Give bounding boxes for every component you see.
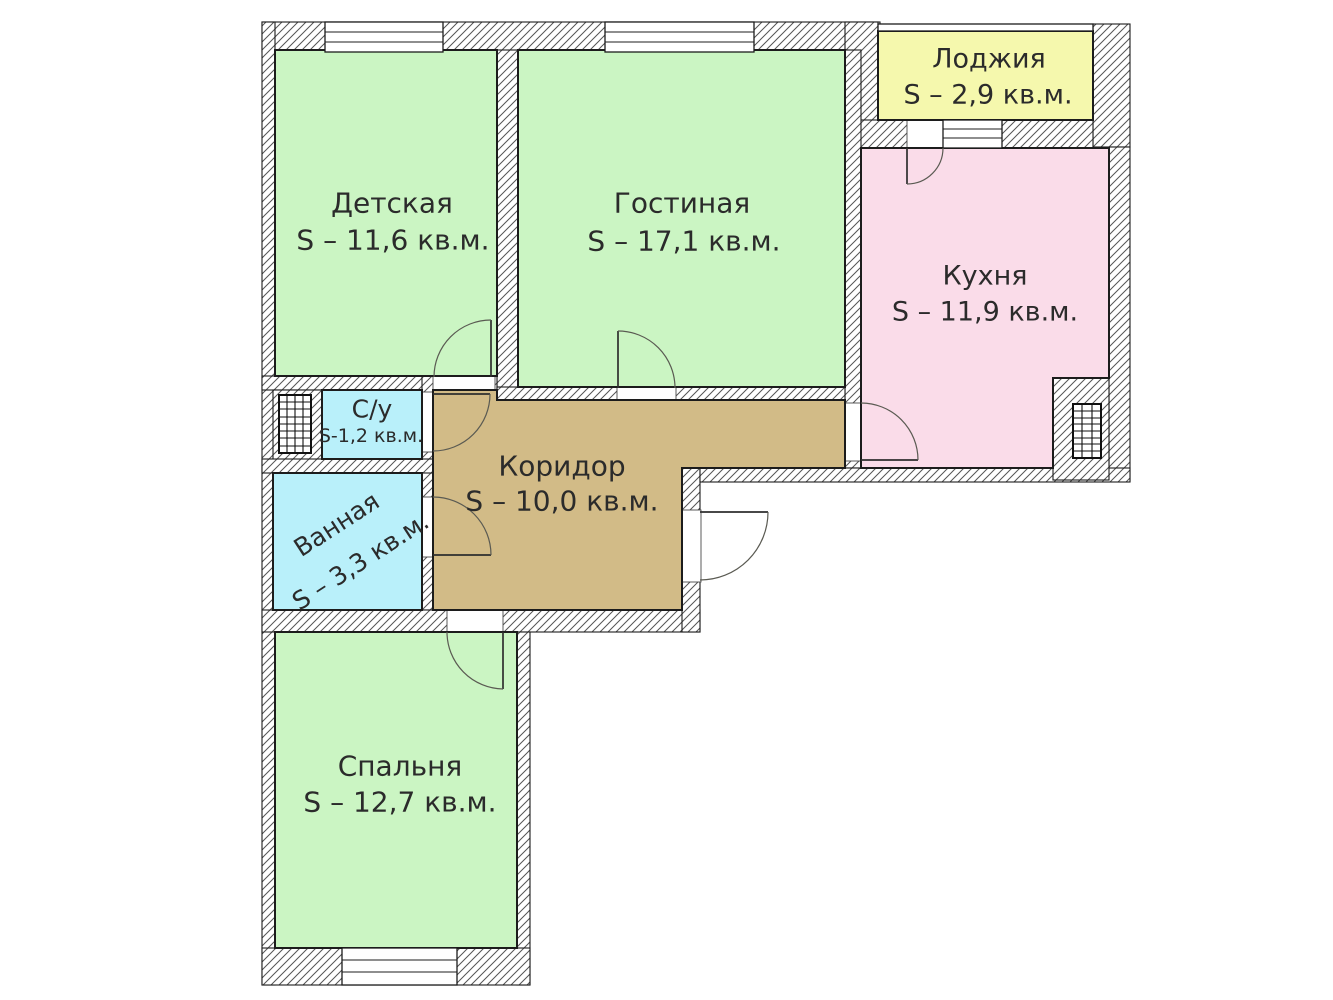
label-wc-area: S-1,2 кв.м. xyxy=(319,425,423,447)
opening-children-door xyxy=(433,375,495,391)
opening-livingroom-door xyxy=(617,386,676,401)
floor-plan-canvas: Детская S – 11,6 кв.м. Гостиная S – 17,1… xyxy=(0,0,1333,1000)
wall-bedroom-right xyxy=(517,632,530,985)
window-children xyxy=(325,22,443,52)
ventilation-shaft-kitchen-icon xyxy=(1073,404,1101,458)
label-kitchen-name: Кухня xyxy=(942,261,1027,292)
label-kitchen-area: S – 11,9 кв.м. xyxy=(892,297,1078,328)
opening-bedroom-door xyxy=(447,609,503,633)
label-loggia-name: Лоджия xyxy=(932,44,1046,75)
label-livingroom-name: Гостиная xyxy=(614,187,750,220)
opening-kitchen-door xyxy=(844,403,862,461)
label-loggia-area: S – 2,9 кв.м. xyxy=(903,80,1072,111)
window-livingroom xyxy=(605,22,754,52)
wall-right-lower-exterior xyxy=(1109,147,1130,481)
label-corridor-name: Коридор xyxy=(498,450,625,483)
label-bedroom-name: Спальня xyxy=(338,750,463,783)
label-bedroom-area: S – 12,7 кв.м. xyxy=(303,786,496,819)
label-livingroom-area: S – 17,1 кв.м. xyxy=(587,225,780,258)
label-wc-name: С/у xyxy=(352,395,393,424)
wall-right-upper-exterior xyxy=(1093,24,1130,147)
door-entrance xyxy=(700,512,768,580)
opening-entrance-door xyxy=(681,510,701,582)
wall-wc-bath-divider xyxy=(262,459,434,473)
wall-children-livingroom xyxy=(497,50,518,400)
window-loggia-glazing xyxy=(878,24,1093,31)
window-loggia-kitchen xyxy=(943,120,1002,148)
label-children-name: Детская xyxy=(331,187,453,220)
label-children-area: S – 11,6 кв.м. xyxy=(296,224,489,257)
ventilation-shaft-left-icon xyxy=(279,395,311,453)
opening-balcony-door xyxy=(907,119,943,149)
floor-plan: Детская S – 11,6 кв.м. Гостиная S – 17,1… xyxy=(0,0,1333,1000)
window-bedroom xyxy=(342,948,457,985)
label-corridor-area: S – 10,0 кв.м. xyxy=(465,485,658,518)
